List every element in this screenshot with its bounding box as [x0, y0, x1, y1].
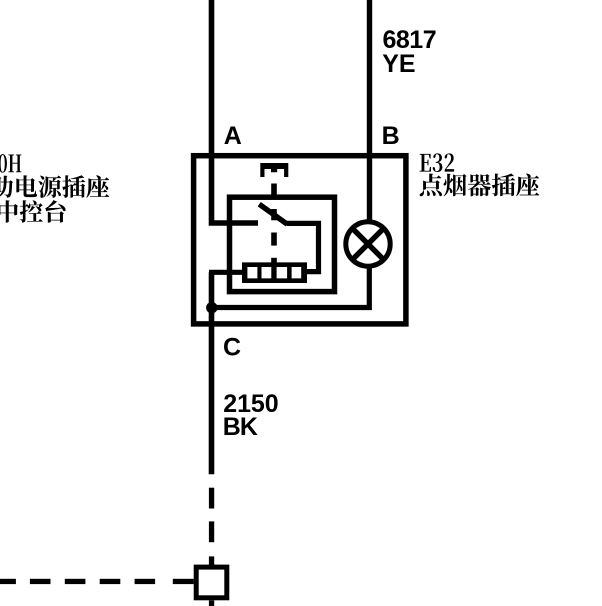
svg-text:C: C	[223, 334, 241, 362]
svg-text:A: A	[224, 122, 242, 150]
svg-text:BK: BK	[223, 413, 258, 441]
svg-text:YE: YE	[382, 50, 415, 78]
svg-text:B: B	[382, 122, 400, 150]
